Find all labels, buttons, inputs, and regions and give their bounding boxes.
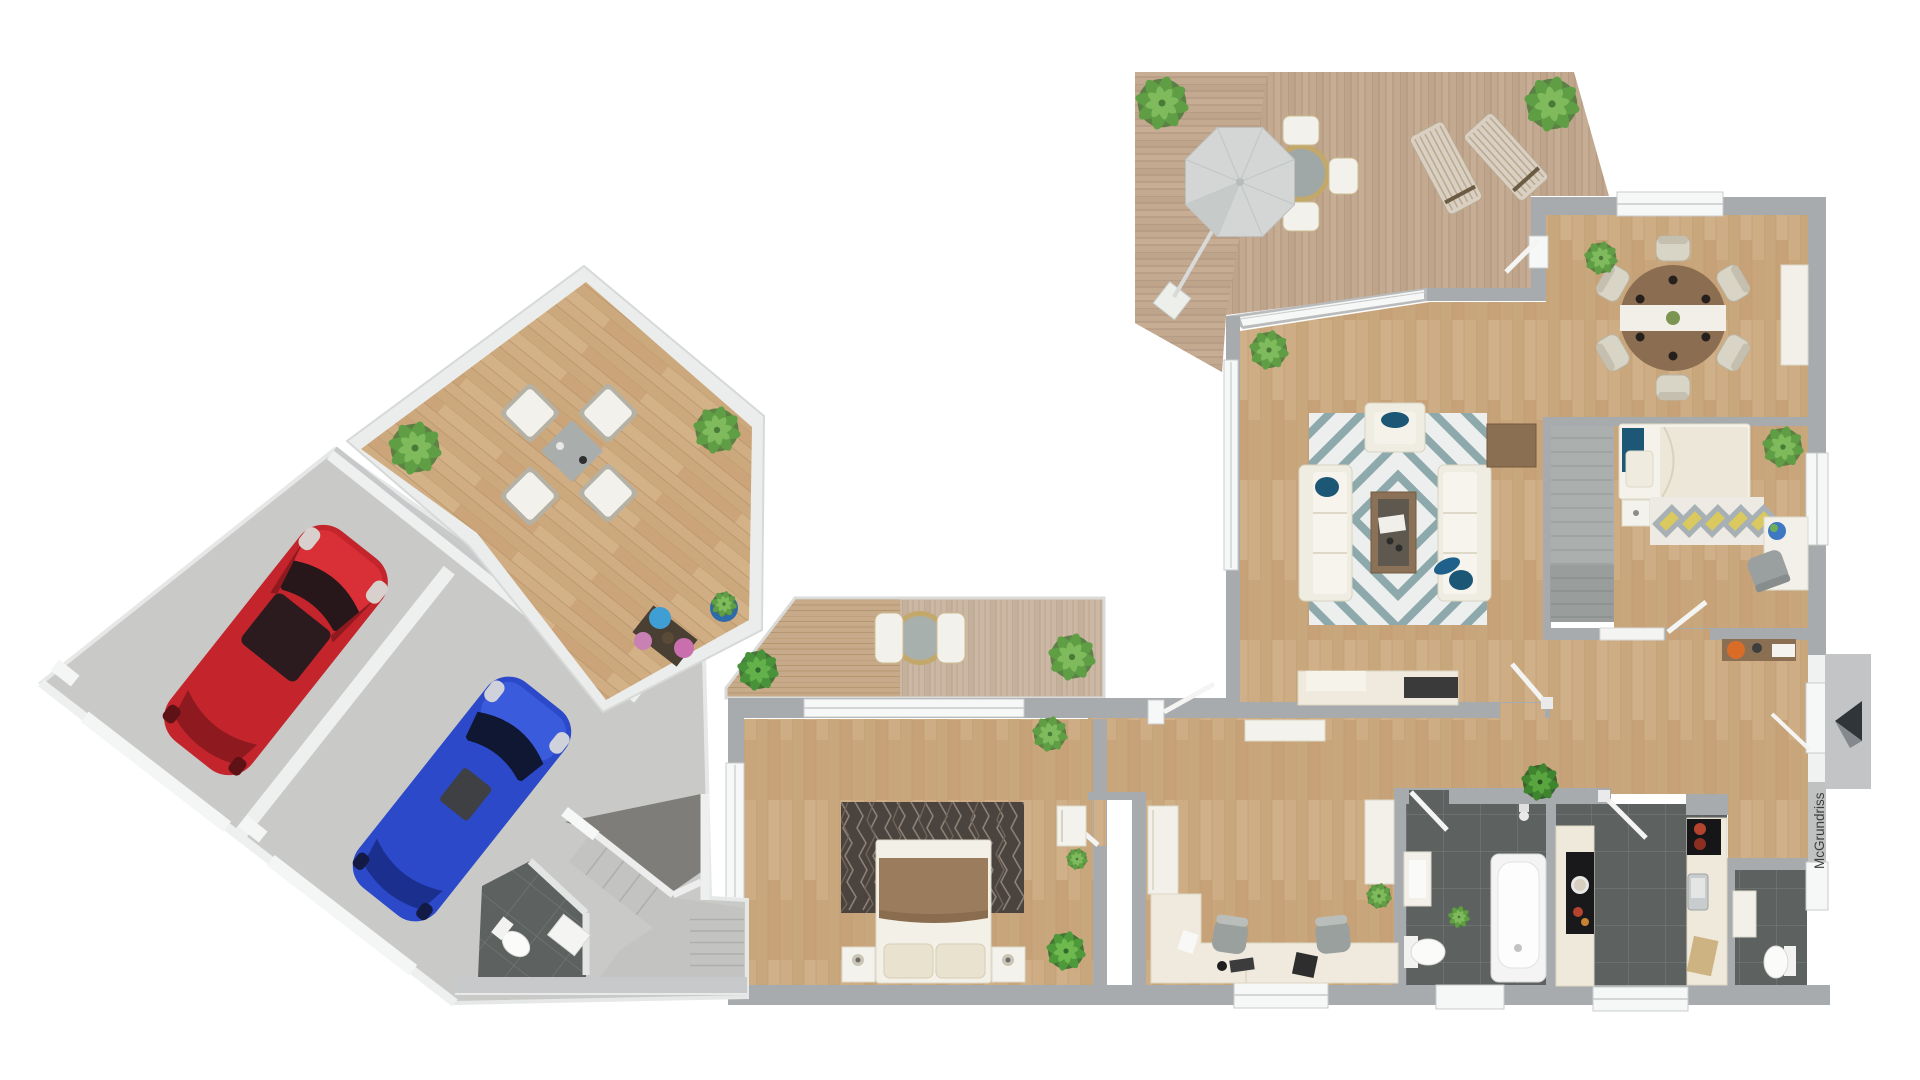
svg-text:McGrundriss: McGrundriss	[1812, 792, 1827, 869]
